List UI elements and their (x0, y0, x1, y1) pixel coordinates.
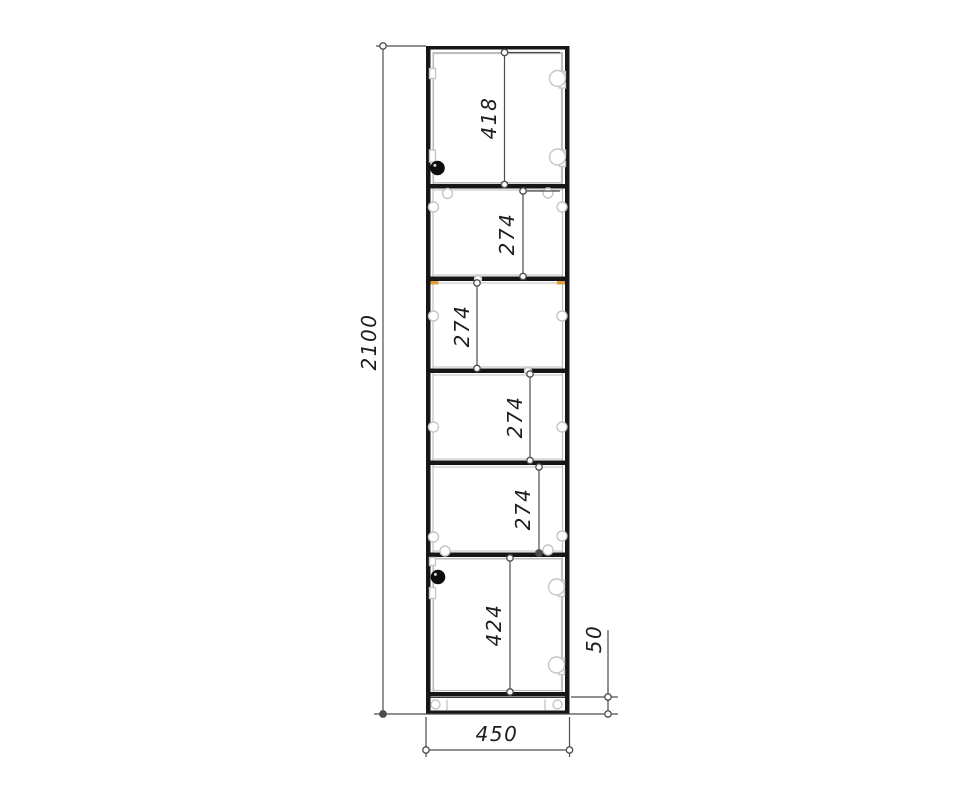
dimension-endpoint (605, 694, 611, 700)
dimension-endpoint (520, 273, 526, 279)
dimension-section-2: 274 (495, 188, 560, 280)
dimension-label-section-6: 424 (482, 604, 506, 647)
dimension-endpoint (474, 365, 480, 371)
shelf-4 (431, 461, 566, 466)
dimension-endpoint (605, 711, 611, 717)
top-panel (426, 46, 570, 50)
cam-fitting-icon (443, 189, 453, 199)
dimension-endpoint (536, 464, 542, 470)
bottom-door-hinge-upper (549, 579, 565, 597)
dimension-endpoint (474, 280, 480, 286)
cam-fitting-icon (557, 202, 567, 212)
cam-fitting-icon (429, 532, 439, 542)
dimension-section-1: 418 (477, 49, 560, 187)
side-panel-left (426, 46, 431, 714)
shelf-3 (431, 369, 566, 374)
dimension-endpoint (520, 188, 526, 194)
knob-highlight (434, 573, 437, 576)
knob-highlight (433, 164, 436, 167)
plinth-fittings (431, 700, 562, 711)
dimension-section-6: 424 (482, 555, 513, 695)
dimension-overall-height: 2100 (357, 43, 426, 718)
dimension-label-section-2: 274 (495, 213, 519, 256)
dimension-section-3: 274 (450, 280, 480, 372)
cam-fitting-icon (429, 422, 439, 432)
knob-icon (431, 570, 446, 585)
bottom-panel (431, 692, 566, 697)
hinge-cup-icon (550, 71, 566, 87)
dimension-endpoint (507, 555, 513, 561)
bottom-door-knob (431, 570, 446, 585)
edge-banding-left (431, 281, 439, 285)
hinge-plate-icon (430, 150, 436, 162)
dimension-label-section-3: 274 (450, 305, 474, 348)
cam-fitting-icon (440, 546, 450, 556)
cam-fitting-icon (429, 202, 439, 212)
dimension-label-section-1: 418 (477, 97, 501, 140)
dimension-endpoint (380, 43, 386, 49)
cam-fitting-icon (557, 311, 567, 321)
shelf-1 (431, 184, 566, 189)
top-door-knob (430, 161, 445, 176)
dimension-label-overall-width: 450 (476, 722, 519, 746)
dimension-label-plinth-height: 50 (582, 625, 606, 653)
edge-banding-right (557, 281, 565, 285)
cam-fitting-icon (431, 700, 440, 709)
dimension-endpoint (536, 550, 543, 557)
side-panel-right (565, 46, 570, 714)
dimension-endpoint (527, 371, 533, 377)
knob-icon (430, 161, 445, 176)
dimension-section-5: 274 (511, 464, 542, 557)
dimension-endpoint (527, 457, 533, 463)
hinge-cup-icon (549, 657, 565, 673)
dimension-endpoint (566, 747, 572, 753)
hinge-cup-icon (549, 579, 565, 595)
dimension-endpoint (501, 181, 507, 187)
bottom-door-hinge-lower (549, 657, 565, 675)
dimension-label-section-5: 274 (511, 488, 535, 531)
shelf-2 (431, 277, 566, 282)
cam-fitting-icon (543, 545, 553, 555)
drawing-page: 2100 418 274 274 274 274 (0, 0, 978, 800)
hinge-plate-icon (430, 558, 436, 566)
top-door-hinge-lower (550, 149, 566, 167)
hinge-plate-icon (430, 588, 436, 599)
hinge-plate-icon (430, 69, 436, 79)
cam-fitting-icon (557, 422, 567, 432)
cabinet-elevation-drawing: 2100 418 274 274 274 274 (0, 0, 978, 800)
cam-fitting-icon (543, 188, 553, 198)
dimension-label-section-4: 274 (503, 396, 527, 439)
dimension-endpoint (501, 49, 507, 55)
top-door-hinge-upper (550, 71, 566, 89)
dimension-endpoint (423, 747, 429, 753)
dimension-endpoint (507, 689, 513, 695)
cam-fitting-icon (557, 531, 567, 541)
dimension-overall-width: 450 (423, 717, 573, 757)
cam-fitting-icon (553, 700, 562, 709)
hinge-cup-icon (550, 149, 566, 165)
cam-fitting-icon (429, 311, 439, 321)
dimension-label-overall-height: 2100 (357, 314, 381, 371)
dimension-section-4: 274 (503, 371, 533, 464)
